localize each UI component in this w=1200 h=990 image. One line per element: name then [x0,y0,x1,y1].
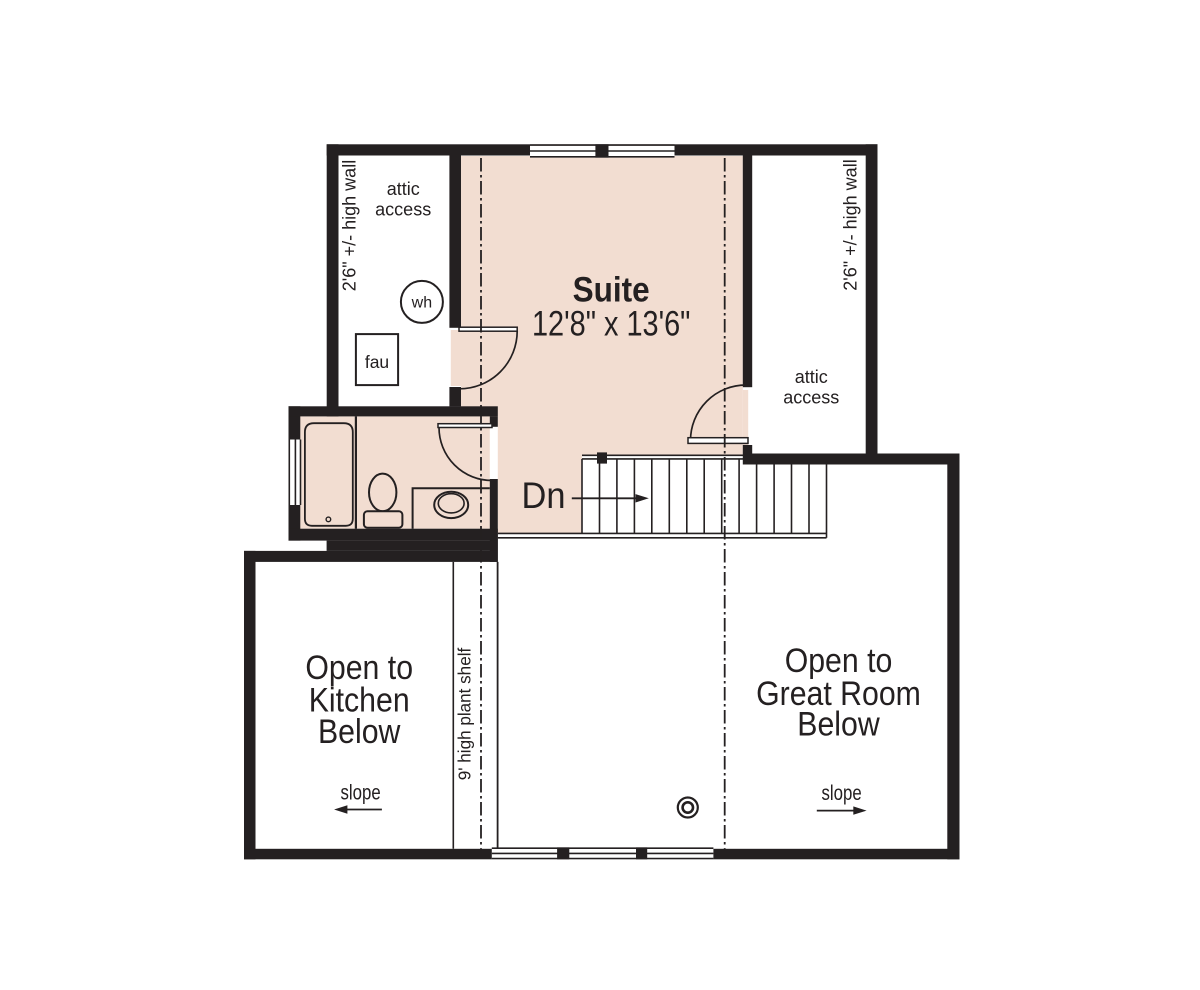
svg-text:access: access [375,199,431,219]
svg-text:2'6" +/- high wall: 2'6" +/- high wall [840,159,860,290]
svg-text:slope: slope [341,782,381,805]
svg-text:Below: Below [797,705,880,743]
svg-text:12'8" x 13'6": 12'8" x 13'6" [532,304,690,343]
svg-text:attic: attic [795,367,828,387]
svg-text:wh: wh [411,295,432,312]
svg-text:Dn: Dn [522,475,566,516]
svg-text:access: access [783,388,839,408]
svg-text:Below: Below [318,712,401,750]
svg-text:9' high plant shelf: 9' high plant shelf [454,648,475,781]
svg-text:fau: fau [365,352,389,372]
svg-text:2'6" +/- high wall: 2'6" +/- high wall [340,160,360,291]
svg-text:slope: slope [822,782,862,805]
svg-text:attic: attic [387,179,420,199]
